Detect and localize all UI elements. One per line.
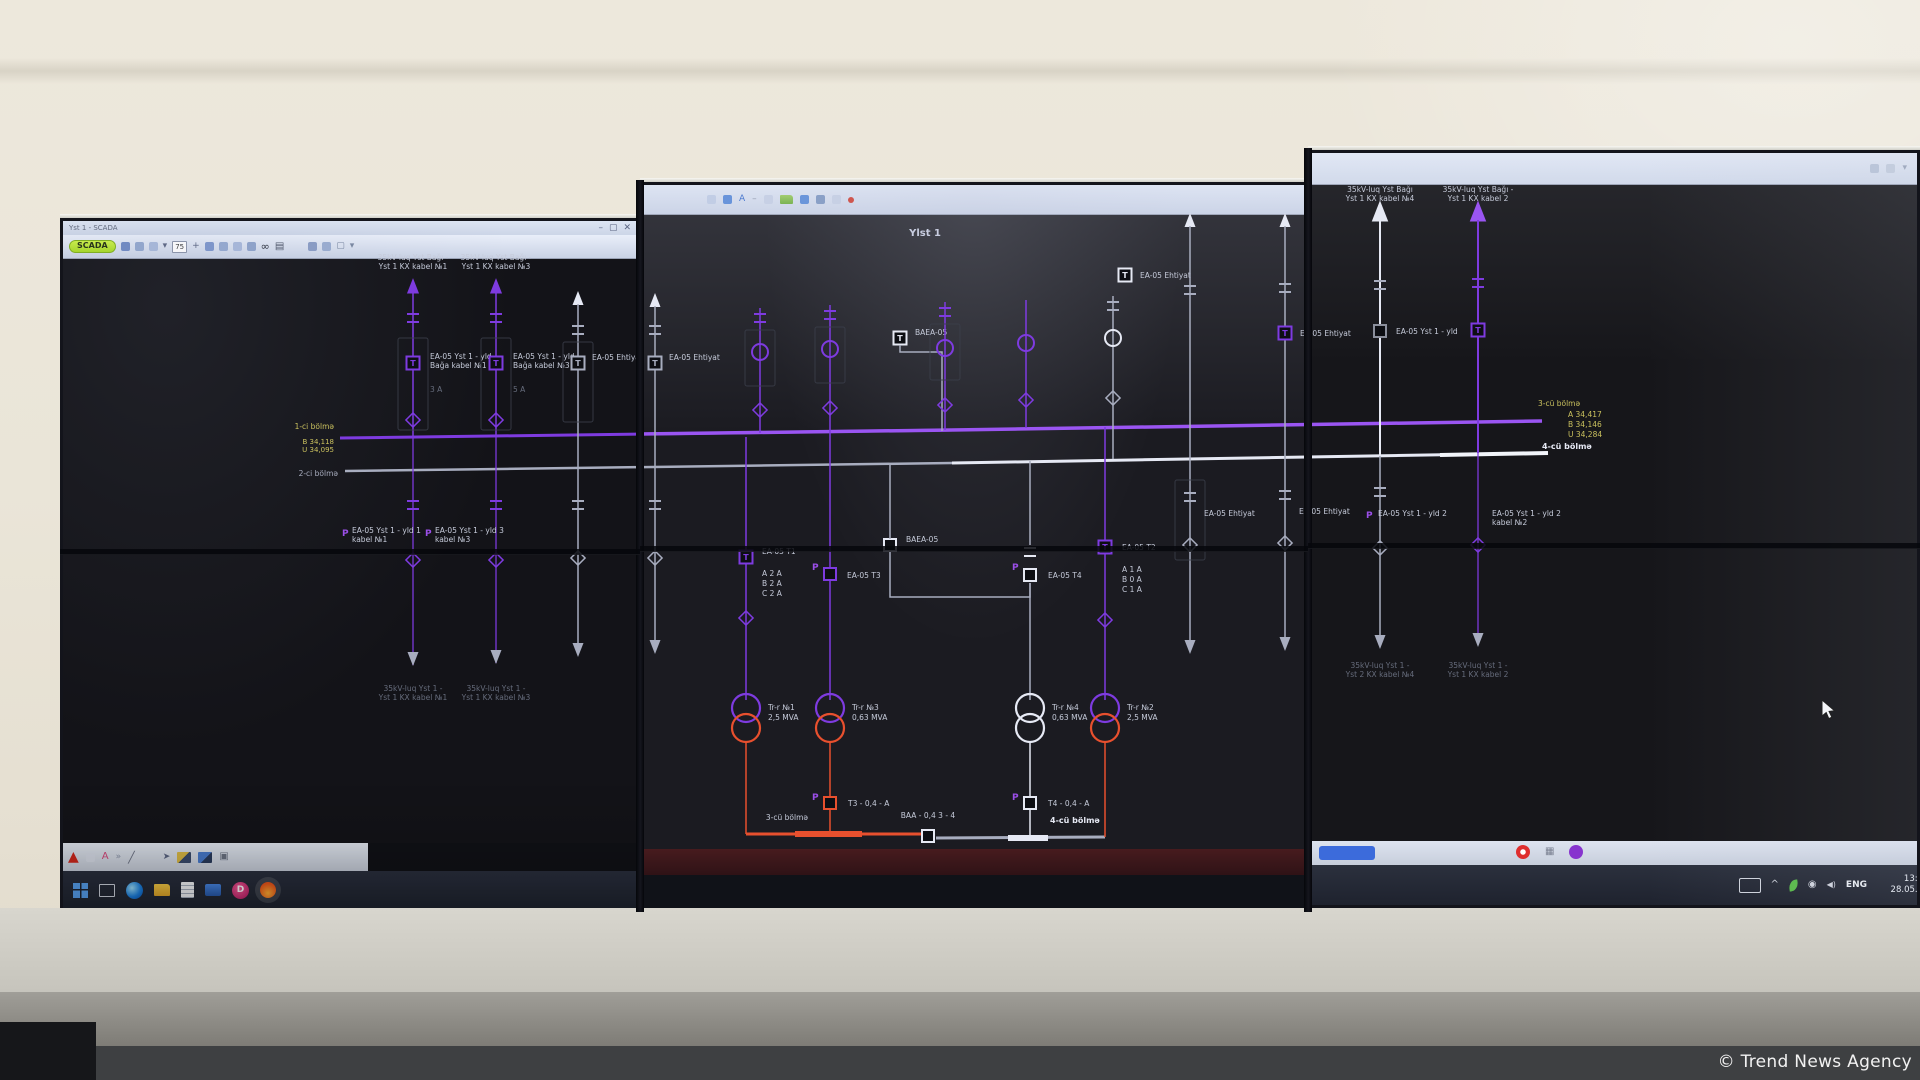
scada-toolbar: SCADA ▾75+∞▤▢▾ — [63, 235, 637, 259]
forward-icon[interactable] — [149, 242, 158, 251]
clock[interactable]: 13:5 28.05.2 — [1877, 874, 1920, 896]
faint-icon[interactable] — [764, 195, 773, 204]
dropdown-icon[interactable]: ▾ — [163, 242, 168, 251]
image-2-icon[interactable] — [198, 852, 212, 863]
bezel-horizontal — [1308, 543, 1920, 549]
screen-left: Yst 1 - SCADA –▢✕ SCADA ▾75+∞▤▢▾ ▲A»╱➤▣ … — [60, 218, 640, 912]
edge-icon[interactable] — [126, 882, 143, 899]
start-button[interactable] — [73, 883, 88, 898]
more-icon[interactable]: ▾ — [350, 242, 355, 251]
connect-icon[interactable] — [121, 242, 130, 251]
leaf-icon[interactable] — [1788, 879, 1798, 891]
center-toolbar: A– — [643, 185, 1305, 215]
chevron-up-icon[interactable]: ^ — [1771, 880, 1779, 890]
status-button[interactable] — [1319, 846, 1375, 860]
tool-1-icon[interactable] — [1870, 164, 1879, 173]
window-buttons: –▢✕ — [598, 224, 631, 233]
notes-app-icon[interactable] — [181, 882, 194, 898]
grid-icon[interactable] — [205, 242, 214, 251]
dropdown-icon[interactable]: ▾ — [1902, 164, 1907, 173]
bottom-band — [0, 1046, 1920, 1080]
globe-icon[interactable] — [816, 195, 825, 204]
wrench-icon[interactable]: ╱ — [128, 852, 135, 863]
print-icon[interactable]: ▤ — [275, 242, 284, 252]
scada-menu-button[interactable]: SCADA — [69, 240, 116, 253]
folder-open-icon[interactable] — [780, 195, 793, 204]
scada-app-logo[interactable]: ▲ — [68, 850, 79, 864]
d-app-icon[interactable]: D — [232, 882, 249, 899]
system-tray: ^◉◀) — [1739, 878, 1836, 893]
bezel-horizontal — [640, 546, 1308, 552]
back-icon[interactable] — [135, 242, 144, 251]
notification-icons: ▦ — [1516, 845, 1583, 859]
pan-icon[interactable] — [247, 242, 256, 251]
windows-taskbar-right: ^◉◀) ENG 13:5 28.05.2 — [1311, 865, 1917, 905]
screen-footer — [643, 875, 1305, 909]
clock-time: 13:5 — [1904, 874, 1920, 884]
event-icon[interactable] — [1569, 845, 1583, 859]
shape-icon[interactable] — [707, 195, 716, 204]
window-titlebar: Yst 1 - SCADA –▢✕ — [63, 221, 637, 235]
window-title: Yst 1 - SCADA — [69, 224, 118, 232]
screen-right: ▾ ▦ ^◉◀) ENG 13:5 28.05.2 — [1308, 150, 1920, 908]
tool-b-icon[interactable] — [322, 242, 331, 251]
restore-icon[interactable]: ▢ — [609, 224, 618, 233]
file-explorer-icon[interactable] — [154, 884, 170, 896]
keyboard-tray-icon[interactable] — [1739, 878, 1761, 893]
photo-credit: © Trend News Agency — [1718, 1052, 1912, 1072]
flame-app-icon[interactable] — [260, 882, 276, 898]
status-circle-icon[interactable]: ◉ — [1808, 880, 1817, 890]
blank-icon[interactable] — [832, 195, 841, 204]
console-band — [0, 992, 1920, 1046]
alarm-icon[interactable] — [1516, 845, 1530, 859]
frame-icon[interactable]: ▢ — [336, 242, 345, 251]
image-1-icon[interactable] — [177, 852, 191, 863]
record-icon[interactable] — [848, 197, 854, 203]
close-icon[interactable]: ✕ — [623, 224, 631, 233]
select-icon[interactable] — [233, 242, 242, 251]
minimize-icon[interactable]: – — [598, 224, 603, 233]
new-page-icon[interactable] — [86, 853, 95, 862]
windows-taskbar: D — [63, 871, 637, 909]
app-bottom-bar: ▲A»╱➤▣ — [63, 843, 637, 871]
tool-2-icon[interactable] — [1886, 164, 1895, 173]
text-color-icon[interactable]: A — [102, 852, 109, 862]
export-icon[interactable]: ➤ — [163, 853, 171, 862]
minus-icon[interactable]: – — [752, 195, 757, 204]
layers-icon[interactable] — [219, 242, 228, 251]
ledge — [0, 908, 1920, 992]
control-room-photo: Yst 1 - SCADA –▢✕ SCADA ▾75+∞▤▢▾ ▲A»╱➤▣ … — [0, 0, 1920, 1080]
status-strip: ▦ — [1311, 841, 1917, 865]
grid-status-icon[interactable]: ▦ — [1545, 847, 1554, 857]
task-view-icon[interactable] — [99, 884, 115, 897]
clock-date: 28.05.2 — [1891, 885, 1920, 895]
language-indicator[interactable]: ENG — [1846, 880, 1867, 890]
toolbar-icons: ▾75+∞▤▢▾ — [121, 241, 355, 253]
app-toolbar: ▲A»╱➤▣ — [63, 843, 368, 871]
speaker-icon[interactable]: ◀) — [1827, 881, 1836, 889]
right-toolbar: ▾ — [1311, 153, 1917, 185]
mail-icon[interactable] — [205, 884, 221, 896]
bezel-vertical — [1304, 148, 1312, 912]
arrows-icon[interactable]: » — [116, 853, 122, 862]
fill-icon[interactable] — [723, 195, 732, 204]
desk-corner — [0, 1022, 96, 1080]
zoom-in-icon[interactable]: + — [192, 242, 200, 251]
crop-frame-icon[interactable]: ▣ — [219, 852, 228, 862]
font-icon[interactable]: A — [739, 195, 745, 204]
tool-a-icon[interactable] — [308, 242, 317, 251]
binoculars-icon[interactable]: ∞ — [261, 241, 270, 252]
wall-shadow-band — [0, 58, 1920, 84]
flag-icon[interactable] — [800, 195, 809, 204]
alarm-strip — [643, 849, 1305, 875]
bezel-horizontal — [60, 549, 640, 555]
zoom-input[interactable]: 75 — [172, 241, 187, 253]
